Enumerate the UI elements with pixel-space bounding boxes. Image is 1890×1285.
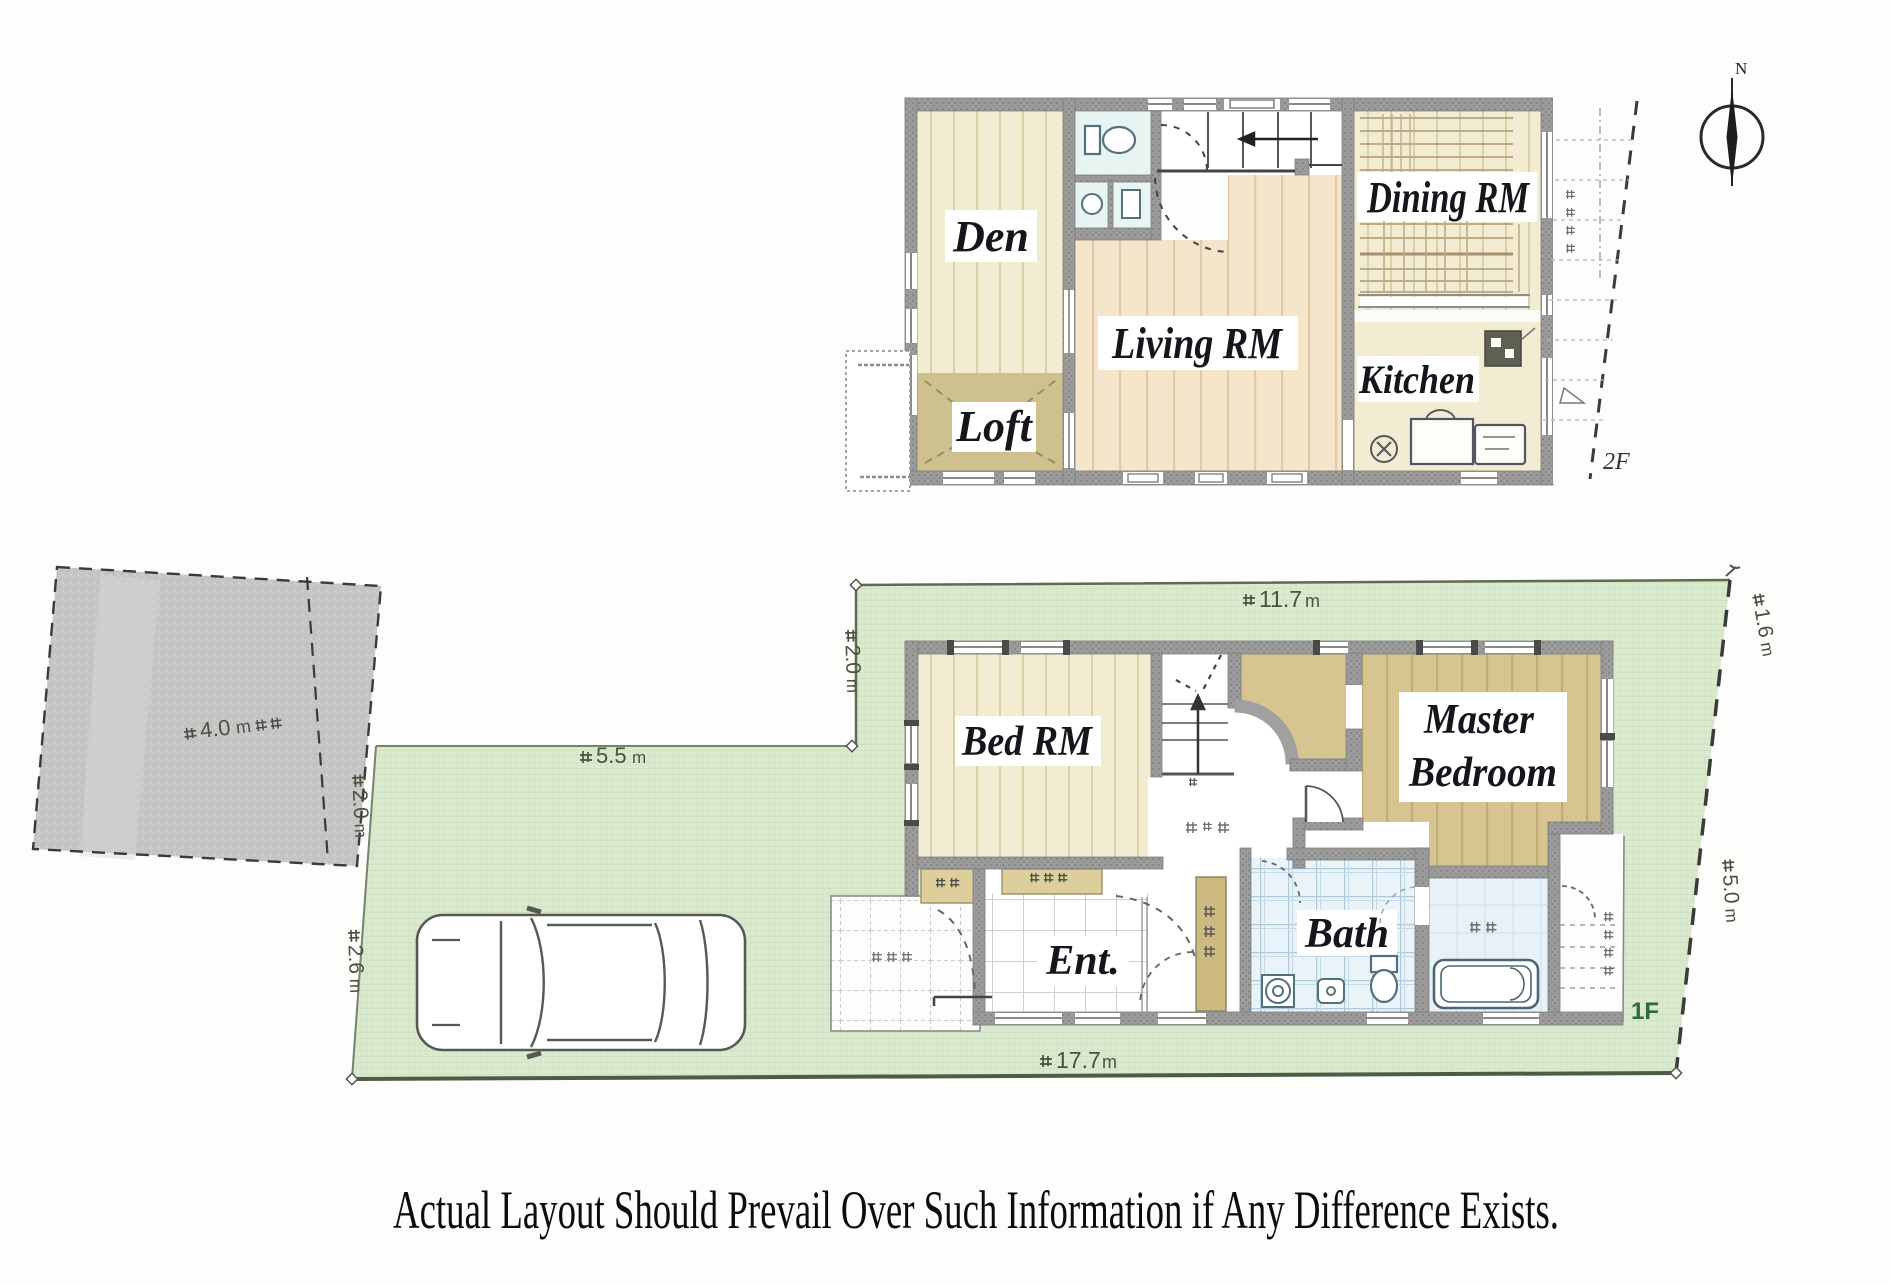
svg-text:m: m bbox=[351, 823, 371, 838]
svg-text:Den: Den bbox=[952, 212, 1029, 261]
svg-text:m: m bbox=[1102, 1052, 1117, 1072]
svg-text:Bath: Bath bbox=[1304, 911, 1389, 957]
svg-text:m: m bbox=[235, 716, 252, 738]
svg-text:Living RM: Living RM bbox=[1111, 319, 1283, 368]
svg-text:Actual Layout Should Prevail O: Actual Layout Should Prevail Over Such I… bbox=[393, 1180, 1559, 1240]
svg-text:m: m bbox=[346, 978, 365, 993]
svg-text:m: m bbox=[1305, 591, 1320, 611]
svg-text:N: N bbox=[1735, 59, 1747, 78]
svg-text:m: m bbox=[632, 748, 646, 767]
svg-text:Master: Master bbox=[1423, 697, 1534, 743]
svg-text:Kitchen: Kitchen bbox=[1358, 357, 1475, 402]
svg-text:Loft: Loft bbox=[955, 402, 1034, 451]
svg-text:2.0: 2.0 bbox=[348, 789, 372, 819]
svg-text:m: m bbox=[843, 678, 862, 693]
svg-text:11.7: 11.7 bbox=[1259, 586, 1302, 612]
svg-text:2.0: 2.0 bbox=[841, 644, 865, 674]
svg-text:2.6: 2.6 bbox=[344, 944, 368, 974]
svg-text:Bedroom: Bedroom bbox=[1408, 750, 1557, 796]
svg-text:2F: 2F bbox=[1603, 449, 1630, 475]
svg-text:m: m bbox=[1721, 908, 1741, 923]
svg-text:5.0: 5.0 bbox=[1718, 874, 1743, 905]
svg-text:Bed RM: Bed RM bbox=[961, 719, 1093, 765]
svg-text:4.0: 4.0 bbox=[198, 714, 231, 743]
svg-text:17.7: 17.7 bbox=[1056, 1047, 1101, 1073]
svg-text:Dining RM: Dining RM bbox=[1366, 173, 1530, 222]
svg-text:5.5: 5.5 bbox=[596, 743, 627, 768]
svg-text:1F: 1F bbox=[1631, 998, 1659, 1025]
svg-text:Ent.: Ent. bbox=[1045, 938, 1120, 984]
